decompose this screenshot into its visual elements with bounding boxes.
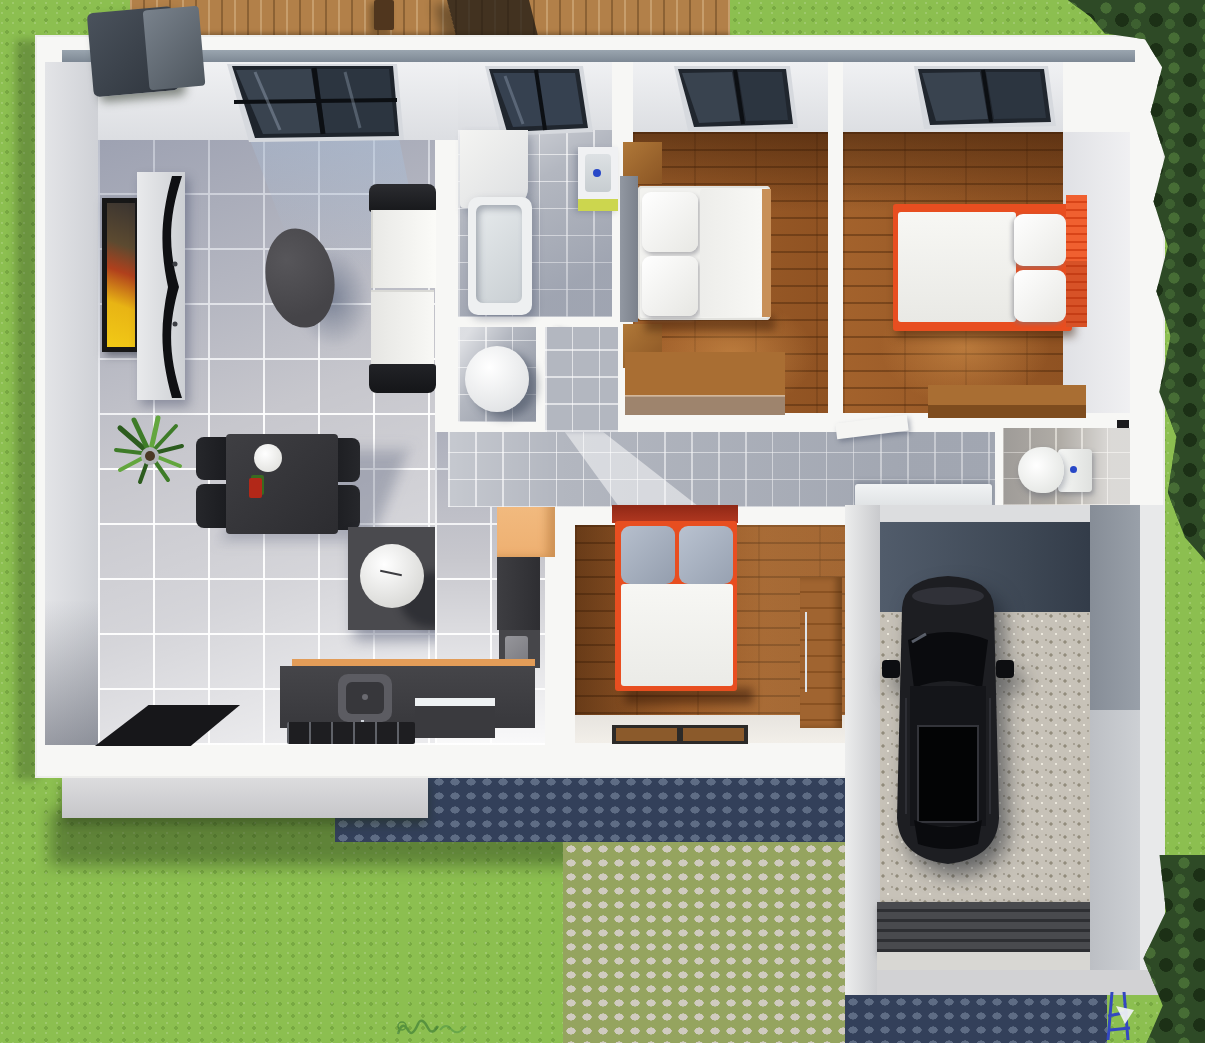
doormat-panel bbox=[616, 728, 677, 741]
floor-plan-scene bbox=[0, 0, 1205, 1043]
garage-right-wall-upper bbox=[1090, 505, 1140, 710]
kitchen-counter bbox=[280, 666, 535, 728]
bed3-wardrobe bbox=[800, 577, 842, 728]
garage-left-wall-face bbox=[845, 505, 880, 995]
deck-wood-post bbox=[374, 0, 394, 30]
cobblestone-patio bbox=[563, 842, 845, 1043]
curved-tv bbox=[152, 174, 192, 400]
watermark-logo bbox=[392, 1014, 478, 1043]
bed2-pillow bbox=[1014, 270, 1066, 322]
bathtub bbox=[468, 197, 532, 315]
dishwasher bbox=[415, 698, 495, 738]
bed1-footboard bbox=[762, 189, 771, 317]
bed1-pillow bbox=[642, 256, 698, 316]
bed2-headboard bbox=[1066, 195, 1087, 327]
doormat-panel bbox=[683, 728, 744, 741]
kitchen-sink bbox=[338, 674, 392, 722]
bed1-headboard bbox=[620, 176, 638, 322]
bed3-pillow bbox=[679, 526, 733, 584]
bed1-desk bbox=[625, 352, 785, 415]
garage-ramp-mat bbox=[877, 902, 1093, 952]
sofa-armrest-top bbox=[369, 184, 436, 212]
bed1-pillow bbox=[642, 192, 698, 252]
wood-deck bbox=[130, 0, 730, 36]
sink-green-base bbox=[578, 199, 618, 211]
bed2-pillow bbox=[1014, 214, 1066, 266]
table-centerpiece bbox=[249, 478, 262, 498]
bed3-doormat bbox=[612, 725, 748, 744]
sofa-cushion-upper bbox=[371, 210, 436, 288]
hallway-vertical-floor bbox=[545, 327, 618, 432]
dining-table bbox=[226, 434, 338, 534]
dark-tall-unit bbox=[497, 557, 540, 630]
house-plant bbox=[110, 412, 188, 490]
bbq-grill bbox=[86, 0, 216, 102]
garage-right-wall-lower bbox=[1090, 710, 1140, 970]
sphere-lamp bbox=[360, 544, 424, 608]
cobblestone-below-garage bbox=[845, 995, 1107, 1043]
grill-lid bbox=[143, 6, 206, 91]
foundation-slab bbox=[62, 778, 428, 818]
sink-drain bbox=[362, 694, 368, 700]
bathroom-skylight-window bbox=[483, 64, 597, 138]
wall-art-canvas bbox=[107, 203, 135, 347]
bedroom2-window bbox=[912, 64, 1060, 132]
wardrobe-handle bbox=[805, 612, 807, 692]
bed3-pillow bbox=[621, 526, 675, 584]
sink-faucet-dot bbox=[593, 169, 601, 177]
bathtub-basin bbox=[476, 205, 522, 303]
wall-art-frame bbox=[102, 198, 140, 352]
sofa-armrest-bottom bbox=[369, 364, 436, 393]
water-heater bbox=[465, 346, 529, 412]
wall-sink bbox=[578, 147, 618, 209]
bed3-mattress bbox=[621, 584, 733, 686]
car bbox=[882, 568, 1014, 876]
cooktop bbox=[287, 722, 415, 744]
toilet-flush-button bbox=[1070, 466, 1077, 473]
sofa-cushion-lower bbox=[371, 290, 434, 368]
garage-threshold-strip bbox=[877, 952, 1093, 970]
garden-hand-truck bbox=[1098, 990, 1148, 1043]
bed2-mattress bbox=[898, 212, 1016, 322]
bed2-floor-shade-top bbox=[843, 132, 1063, 212]
toilet-bowl bbox=[1018, 447, 1064, 493]
hall-bench bbox=[855, 484, 992, 507]
bed1-duvet bbox=[700, 189, 762, 317]
living-skylight-window bbox=[225, 62, 407, 144]
living-wall-corner-shadow bbox=[45, 600, 98, 745]
dinner-plate bbox=[254, 444, 282, 472]
roof-trim-strip bbox=[62, 50, 1135, 62]
deck-shade-square bbox=[447, 0, 539, 40]
bed2-desk bbox=[928, 385, 1086, 418]
bedroom1-window bbox=[672, 64, 802, 134]
